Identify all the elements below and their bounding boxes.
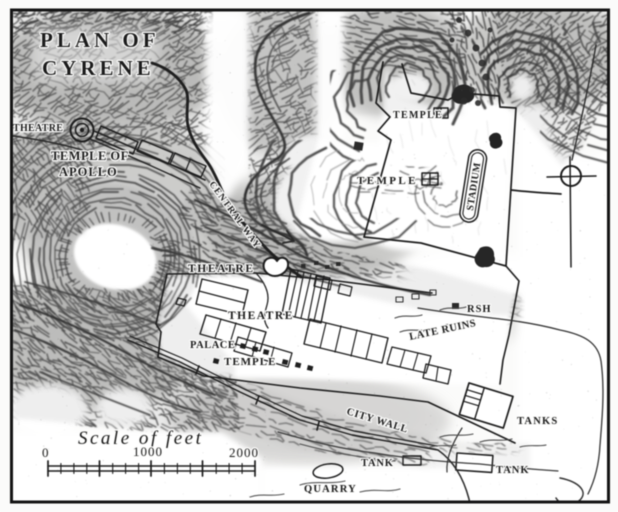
- svg-text:TANK: TANK: [496, 465, 530, 476]
- svg-text:PLAN OF: PLAN OF: [40, 28, 160, 52]
- svg-text:TEMPLE: TEMPLE: [224, 356, 276, 368]
- svg-text:RSH: RSH: [467, 304, 492, 315]
- svg-text:1000: 1000: [133, 444, 163, 459]
- svg-text:TEMPLE: TEMPLE: [393, 110, 443, 121]
- svg-text:0: 0: [42, 445, 49, 460]
- svg-text:APOLLO: APOLLO: [59, 165, 118, 179]
- svg-text:THEATRE: THEATRE: [13, 123, 63, 134]
- svg-text:TANK: TANK: [361, 458, 394, 469]
- svg-text:QUARRY: QUARRY: [304, 484, 357, 495]
- svg-text:2000: 2000: [229, 445, 259, 460]
- svg-text:THEATRE: THEATRE: [228, 310, 294, 322]
- svg-text:TANKS: TANKS: [517, 416, 558, 427]
- svg-text:TEMPLE OF: TEMPLE OF: [51, 149, 129, 163]
- svg-text:TEMPLE: TEMPLE: [357, 175, 418, 187]
- svg-text:CYRENE: CYRENE: [42, 56, 155, 80]
- svg-text:PALACE: PALACE: [190, 340, 235, 351]
- svg-text:THEATRE: THEATRE: [188, 263, 255, 275]
